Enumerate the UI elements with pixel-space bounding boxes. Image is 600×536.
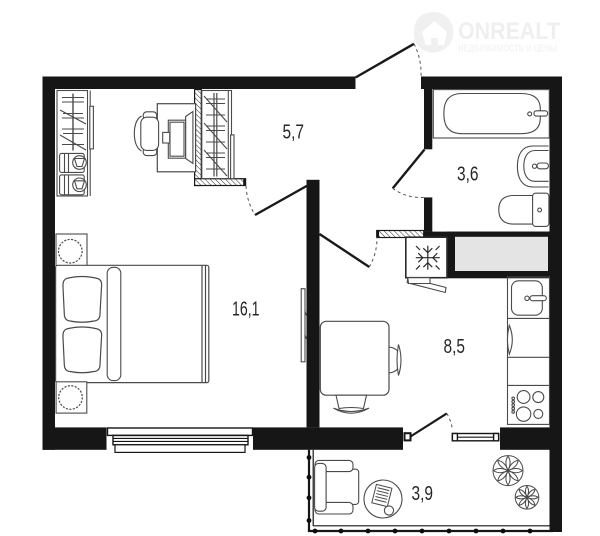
svg-text:3,9: 3,9 [412,483,434,505]
svg-text:НЕДВИЖИМОСТЬ И ЦЕНЫ: НЕДВИЖИМОСТЬ И ЦЕНЫ [458,44,557,55]
svg-text:ONREALT: ONREALT [458,18,560,45]
svg-text:3,6: 3,6 [457,164,479,186]
svg-text:5,7: 5,7 [283,121,305,143]
svg-text:8,5: 8,5 [444,336,466,358]
svg-text:16,1: 16,1 [232,298,260,320]
